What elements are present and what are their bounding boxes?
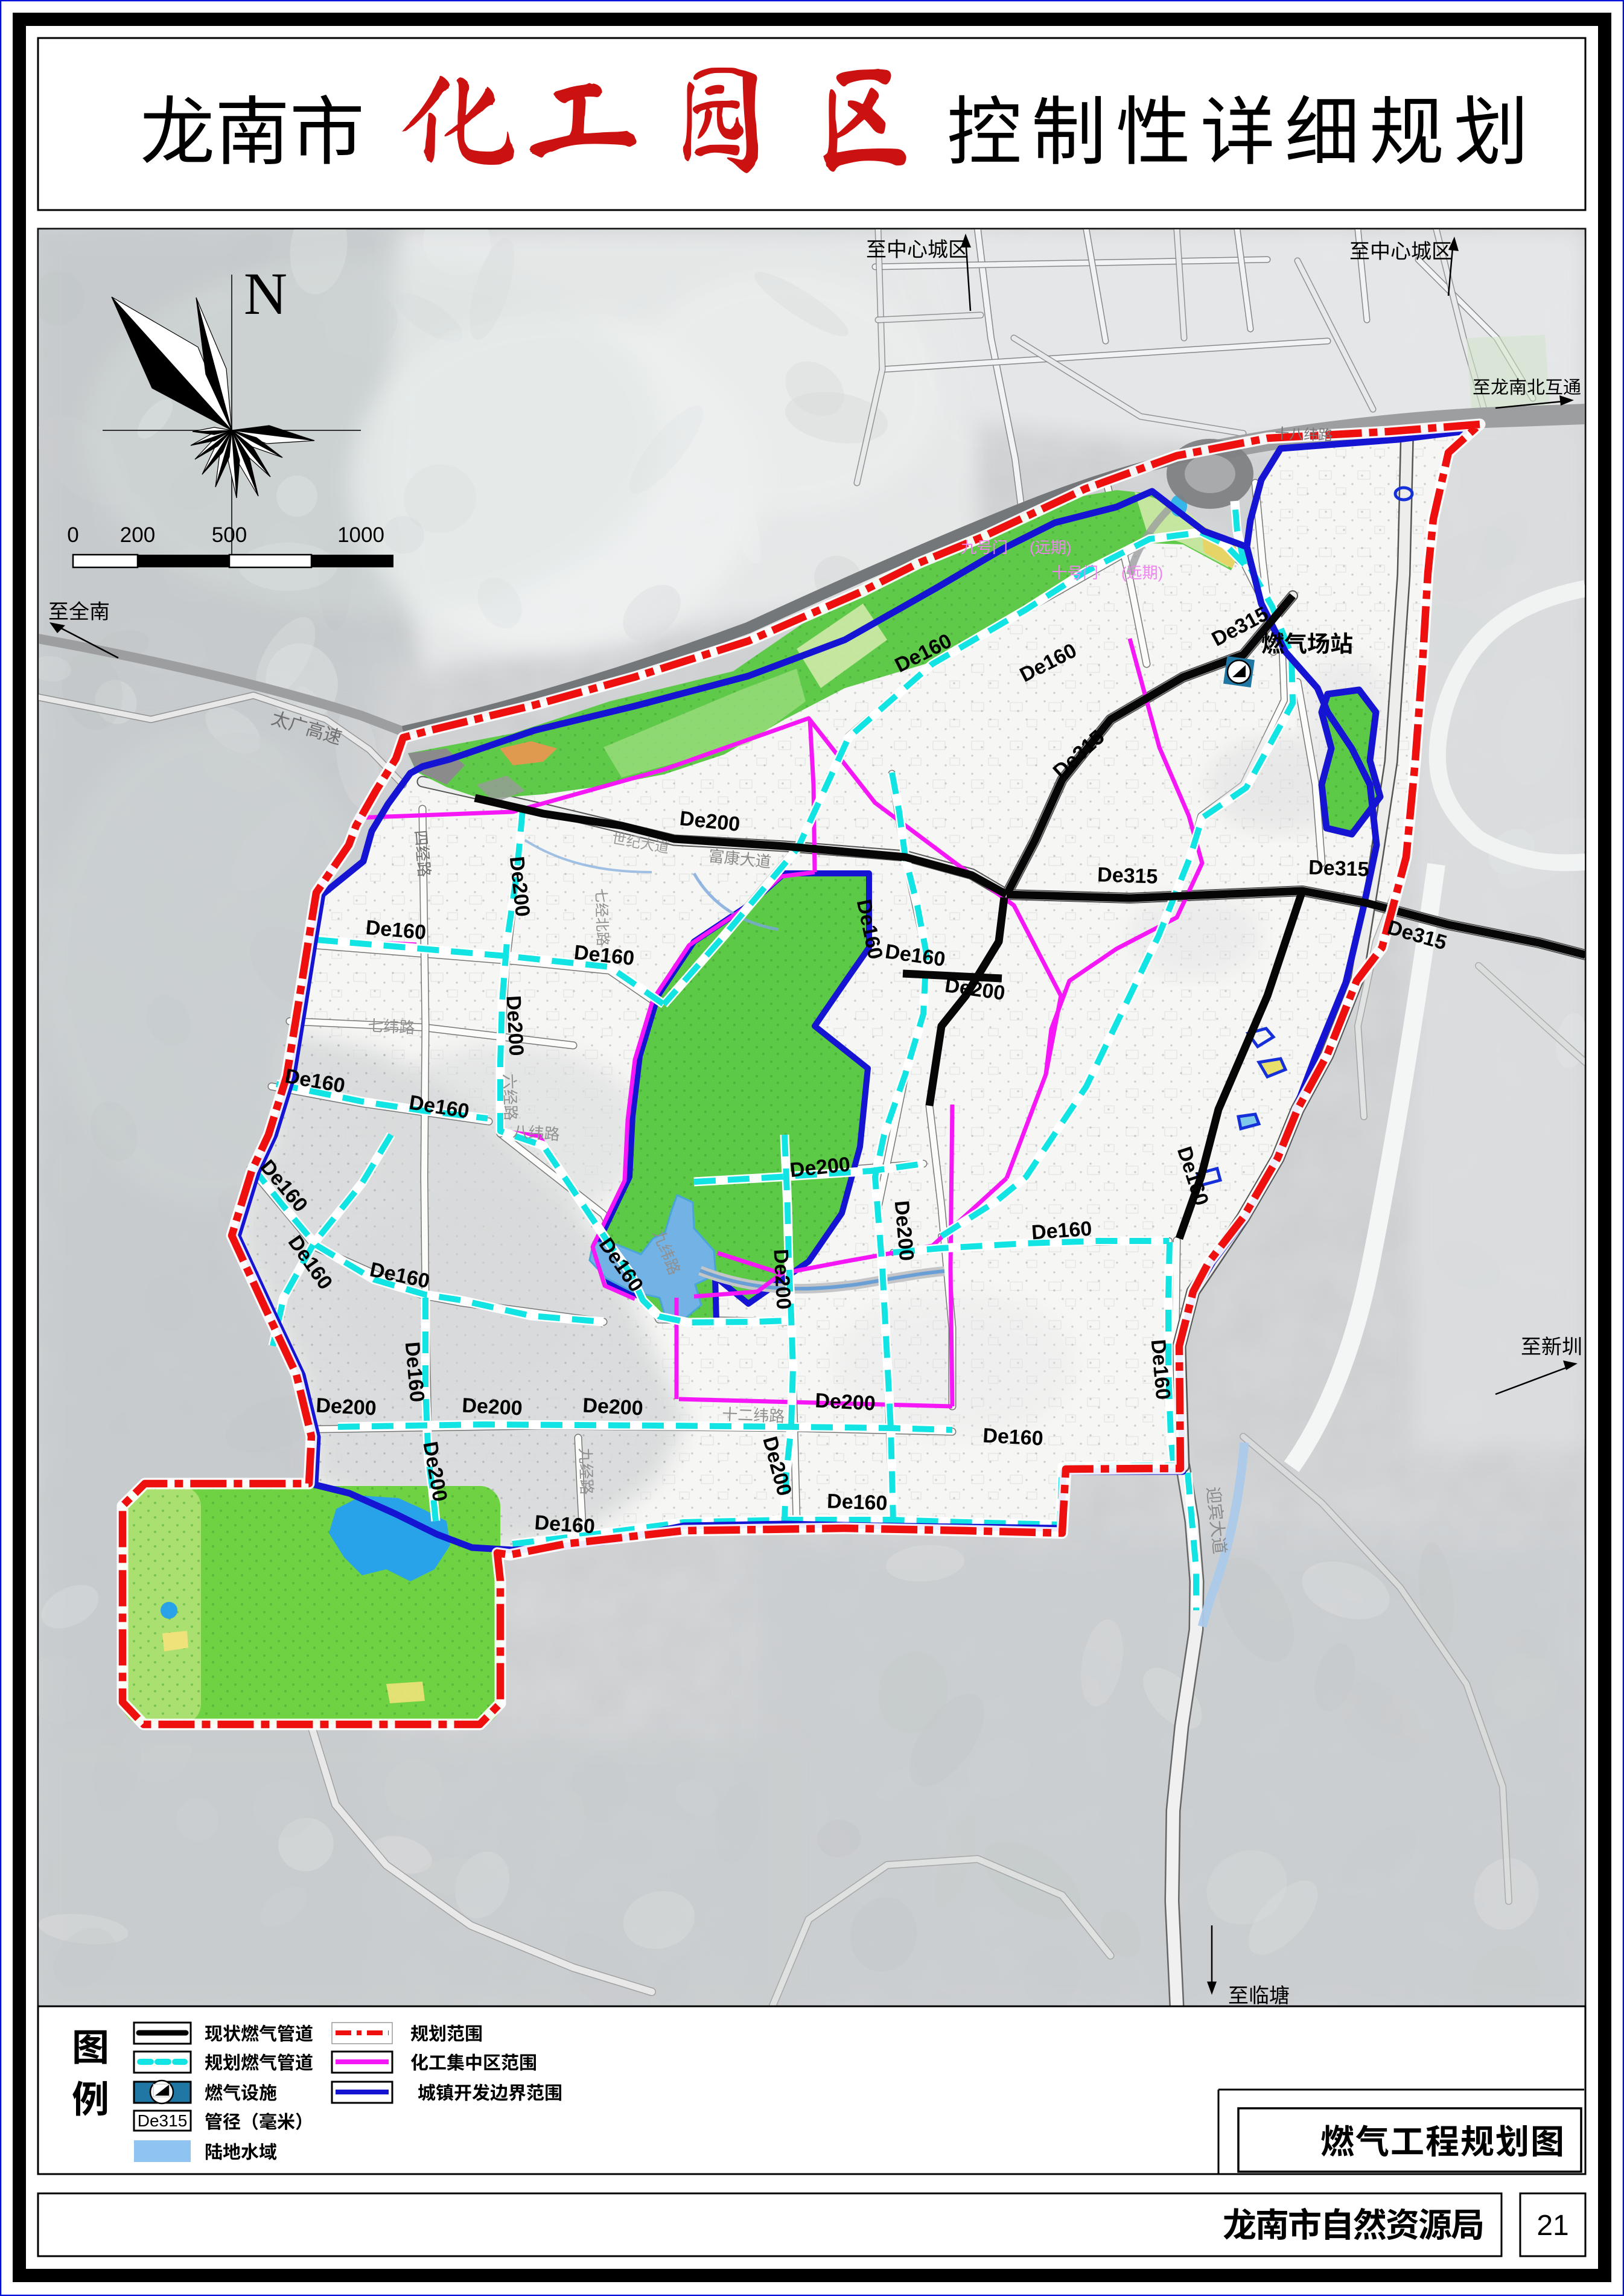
svg-text:500: 500 bbox=[212, 523, 247, 547]
svg-text:De315: De315 bbox=[1308, 856, 1369, 881]
svg-text:De200: De200 bbox=[815, 1389, 876, 1415]
svg-text:De315: De315 bbox=[1097, 863, 1158, 888]
svg-text:0: 0 bbox=[67, 523, 78, 547]
svg-text:De160: De160 bbox=[827, 1490, 888, 1514]
svg-text:De200: De200 bbox=[769, 1248, 795, 1310]
svg-text:De160: De160 bbox=[982, 1424, 1044, 1450]
svg-text:200: 200 bbox=[120, 523, 155, 547]
svg-text:(远期): (远期) bbox=[1030, 538, 1071, 556]
svg-text:1000: 1000 bbox=[337, 523, 384, 547]
svg-text:De315: De315 bbox=[138, 2111, 188, 2130]
svg-text:21: 21 bbox=[1536, 2210, 1568, 2242]
svg-text:De200: De200 bbox=[582, 1394, 644, 1420]
svg-text:De200: De200 bbox=[502, 995, 527, 1056]
svg-text:De160: De160 bbox=[1031, 1217, 1093, 1245]
svg-text:N: N bbox=[244, 260, 287, 327]
svg-text:De160: De160 bbox=[533, 1511, 596, 1539]
svg-text:De200: De200 bbox=[316, 1394, 377, 1420]
svg-text:(远期): (远期) bbox=[1121, 564, 1163, 582]
svg-text:De200: De200 bbox=[462, 1394, 523, 1420]
